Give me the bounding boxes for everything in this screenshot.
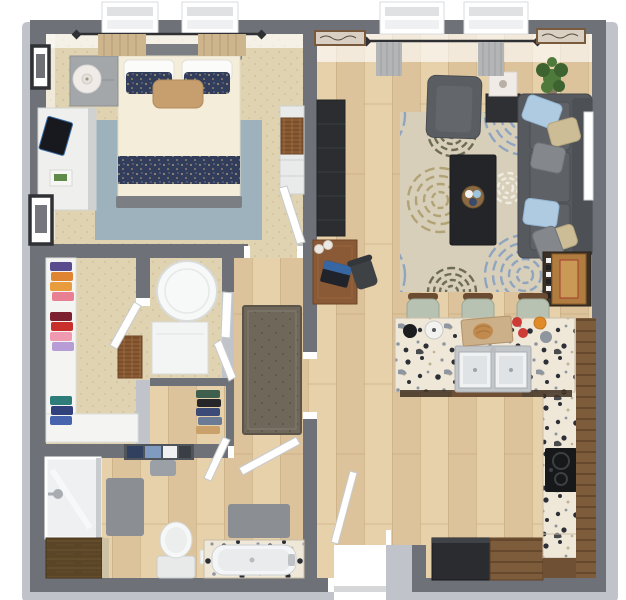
jar: [540, 331, 552, 343]
vase: [315, 245, 324, 254]
hanging-clothes: [50, 262, 74, 425]
drain-icon: [250, 558, 255, 563]
passage-opening-floor: [303, 358, 317, 412]
end-table-lamp: [486, 72, 520, 122]
game-side-table: [543, 252, 591, 306]
base-cabinet: [490, 538, 543, 580]
curtain-panel: [376, 42, 402, 76]
bedroom-door-opening: [248, 244, 298, 258]
footboard: [116, 196, 242, 208]
toilet: [157, 522, 195, 578]
vanity-cabinet: [46, 538, 109, 578]
runner-rug: [243, 306, 301, 434]
hallway: [243, 306, 301, 434]
wall-cabinets: [576, 318, 596, 578]
nightstand: [70, 56, 118, 106]
coffee-table: [450, 155, 496, 245]
bed: [114, 44, 242, 208]
vase: [324, 241, 333, 250]
entry-threshold: [334, 545, 386, 600]
juice-glass: [534, 317, 546, 329]
curtain-panel: [478, 42, 504, 76]
floor-plan-stage: 3D rendered one-bedroom apartment floor …: [0, 0, 626, 600]
throw-pillow: [522, 198, 559, 228]
hanging-clothes: [196, 390, 222, 434]
pot: [403, 324, 417, 338]
curtain-panel: [98, 34, 146, 56]
faucet-icon: [490, 347, 496, 353]
side-dresser: [280, 106, 304, 194]
cutting-board: [461, 316, 513, 346]
window: [102, 2, 158, 34]
tomato: [512, 317, 522, 327]
cooktop: [545, 448, 577, 492]
window: [182, 2, 238, 34]
leaning-art-frame: [584, 112, 593, 200]
curtain-panel: [198, 34, 246, 56]
kitchen-sink: [455, 346, 531, 392]
media-console: [317, 100, 345, 236]
hanging-towel: [150, 460, 176, 476]
laundry-bifold-door: [221, 292, 232, 338]
refrigerator: [432, 538, 490, 580]
shower-head-icon: [53, 489, 63, 499]
shower: [46, 458, 101, 538]
counter-corner: [543, 534, 579, 558]
bathtub: [204, 540, 304, 578]
tub-faucet-icon: [288, 554, 295, 566]
tomato: [518, 328, 528, 338]
armchair: [426, 75, 482, 139]
bath-mat: [106, 478, 144, 536]
corner-cabinet: [543, 558, 579, 578]
woven-basket: [281, 118, 303, 154]
laundry-unit-front: [152, 322, 208, 374]
blanket-band: [118, 156, 240, 184]
hamper: [118, 336, 142, 378]
stacked-washer-dryer: [157, 261, 217, 321]
window: [464, 2, 528, 34]
sofa: [518, 94, 592, 264]
bath-mat: [228, 504, 290, 538]
linen-closet: [196, 390, 222, 434]
floor-plan-canvas: 3D rendered one-bedroom apartment floor …: [0, 0, 626, 600]
shower-door-frame: [96, 458, 101, 538]
lumbar-pillow: [153, 80, 203, 108]
window: [380, 2, 444, 34]
